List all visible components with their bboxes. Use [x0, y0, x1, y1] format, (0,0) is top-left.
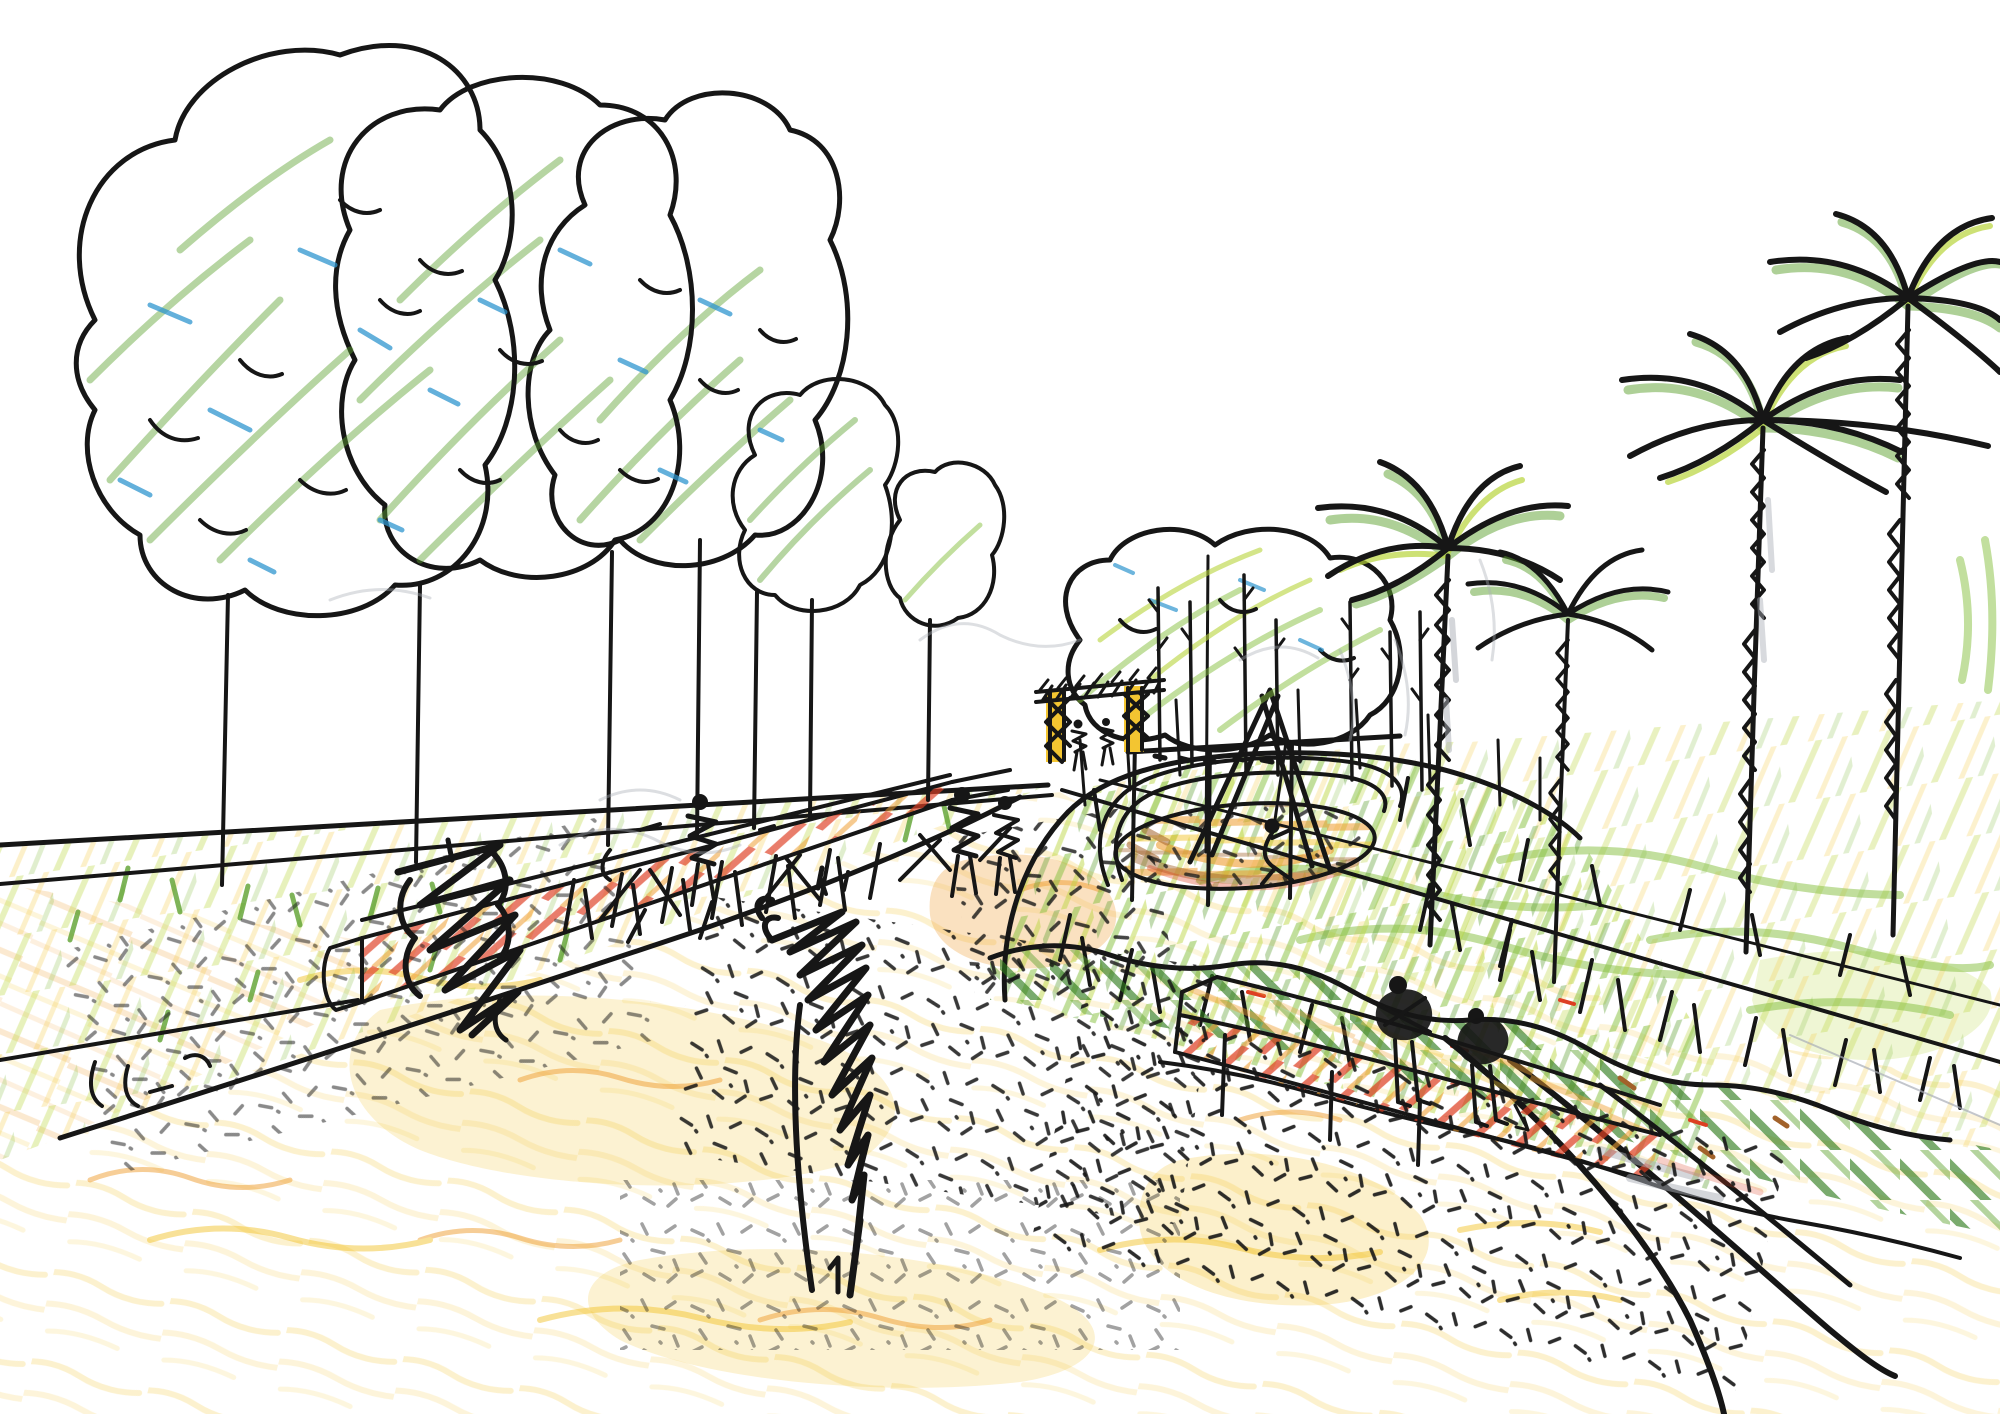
tree-canopy-far [886, 463, 1004, 626]
sketch-page: Hand-drawn landscape design perspective … [0, 0, 2000, 1414]
tree-canopy-3 [528, 93, 848, 566]
deciduous-tree-group-left [76, 45, 1004, 885]
gate-figures [1072, 718, 1113, 770]
landscape-sketch: Hand-drawn landscape design perspective … [0, 0, 2000, 1414]
tree-canopy-2 [336, 77, 693, 577]
